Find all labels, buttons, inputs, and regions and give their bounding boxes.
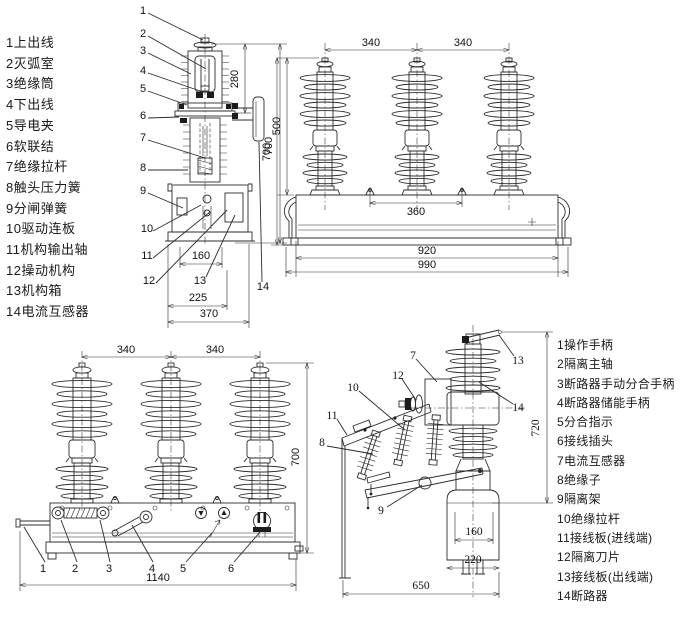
dim-700: 700 [290,448,302,466]
dim-340-left: 340 [362,37,380,49]
callout-7: 7 [410,350,416,362]
pole-drawing [165,34,264,246]
part-label: 13接线板(出线端) [557,568,675,587]
part-label: 14电流互感器 [6,302,89,323]
part-label: 7绝缘拉杆 [6,157,89,178]
callouts: 1 2 3 4 5 6 [24,520,260,575]
part-label: 6软联结 [6,137,89,158]
left-parts-list: 1上出线 2灭弧室 3绝缘筒 4下出线 5导电夹 6软联结 7绝缘拉杆 8触头压… [6,33,89,323]
dim-990: 990 [418,259,436,271]
callout-9: 9 [140,185,146,197]
part-label: 10驱动连板 [6,219,89,240]
part-label: 13机构箱 [6,281,89,302]
callout-2: 2 [72,563,78,575]
part-label: 8触头压力簧 [6,178,89,199]
callout-10: 10 [141,223,153,235]
callout-1: 1 [40,563,46,575]
part-label: 6接线插头 [557,432,675,451]
dim-720: 720 [530,419,542,437]
callout-9: 9 [378,505,384,517]
position-indicators [196,508,230,538]
isolating-arm [342,404,431,446]
part-label: 4下出线 [6,95,89,116]
dim-370: 370 [200,308,218,320]
part-label: 9分闸弹簧 [6,199,89,220]
dimensions: 160 220 650 720 [343,332,553,598]
part-label: 4断路器储能手柄 [557,394,675,413]
callout-4: 4 [140,65,146,77]
part-label: 3断路器手动分合手柄 [557,375,675,394]
part-label: 11接线板(进线端) [557,529,675,548]
top-lever [462,330,502,344]
callout-7: 7 [140,132,146,144]
part-label: 12隔离刀片 [557,548,675,567]
part-label: 12操动机构 [6,261,89,282]
part-label: 9隔离架 [557,490,675,509]
callout-5: 5 [140,83,146,95]
callout-11: 11 [141,250,152,262]
charging-handle [112,511,152,536]
callout-5: 5 [180,563,186,575]
dim-160: 160 [192,250,210,262]
callout-3: 3 [106,563,112,575]
combined-side-view: 160 220 650 720 7 12 10 11 8 9 13 14 [315,322,560,622]
dim-340-right: 340 [206,344,224,356]
part-label: 5分合指示 [557,413,675,432]
callout-11: 11 [326,410,337,422]
part-label: 1操作手柄 [557,336,675,355]
part-label: 2隔离主轴 [557,355,675,374]
part-label: 10绝缘拉杆 [557,510,675,529]
part-label: 11机构输出轴 [6,240,89,261]
dim-360: 360 [407,206,425,218]
dim-340-left: 340 [117,344,135,356]
operating-handle-shaft [16,519,50,527]
callout-12: 12 [143,275,155,287]
dim-220: 220 [464,554,482,566]
callout-6: 6 [228,563,234,575]
diagram-canvas: 1上出线 2灭弧室 3绝缘筒 4下出线 5导电夹 6软联结 7绝缘拉杆 8触头压… [0,0,700,625]
dimensions: 340 340 360 500 700 920 990 [261,37,568,277]
part-label: 8绝缘子 [557,471,675,490]
side-drawing [339,325,525,597]
combined-front-view: 340 340 1140 700 1 2 3 4 5 6 [10,345,330,600]
breaker-front-view: 340 340 360 500 700 920 990 [265,25,575,295]
callout-12: 12 [392,370,404,382]
callout-14: 14 [512,402,524,414]
callout-3: 3 [140,45,146,57]
part-label: 5导电夹 [6,116,89,137]
callout-8: 8 [319,437,325,449]
part-label: 7电流互感器 [557,452,675,471]
manual-crank [52,507,109,519]
callout-4: 4 [149,563,155,575]
callout-6: 6 [140,110,146,122]
part-label: 3绝缘筒 [6,74,89,95]
dim-340-right: 340 [454,37,472,49]
part-label: 14断路器 [557,587,675,606]
callout-8: 8 [140,162,146,174]
dim-160: 160 [465,526,483,538]
dim-700: 700 [261,143,273,161]
three-pole-drawing [16,351,303,559]
callout-13: 13 [512,355,524,367]
drive-shaft [399,395,423,413]
dim-920: 920 [418,245,436,257]
callout-1: 1 [140,5,146,17]
three-pole-drawing [283,43,571,245]
part-label: 2灭弧室 [6,54,89,75]
callout-10: 10 [347,382,359,394]
callout-13: 13 [194,275,206,287]
callout-2: 2 [140,28,146,40]
right-parts-list: 1操作手柄 2隔离主轴 3断路器手动分合手柄 4断路器储能手柄 5分合指示 6接… [557,336,675,606]
dim-225: 225 [189,292,207,304]
dim-650: 650 [412,580,430,592]
part-label: 1上出线 [6,33,89,54]
dim-280: 280 [229,70,241,88]
